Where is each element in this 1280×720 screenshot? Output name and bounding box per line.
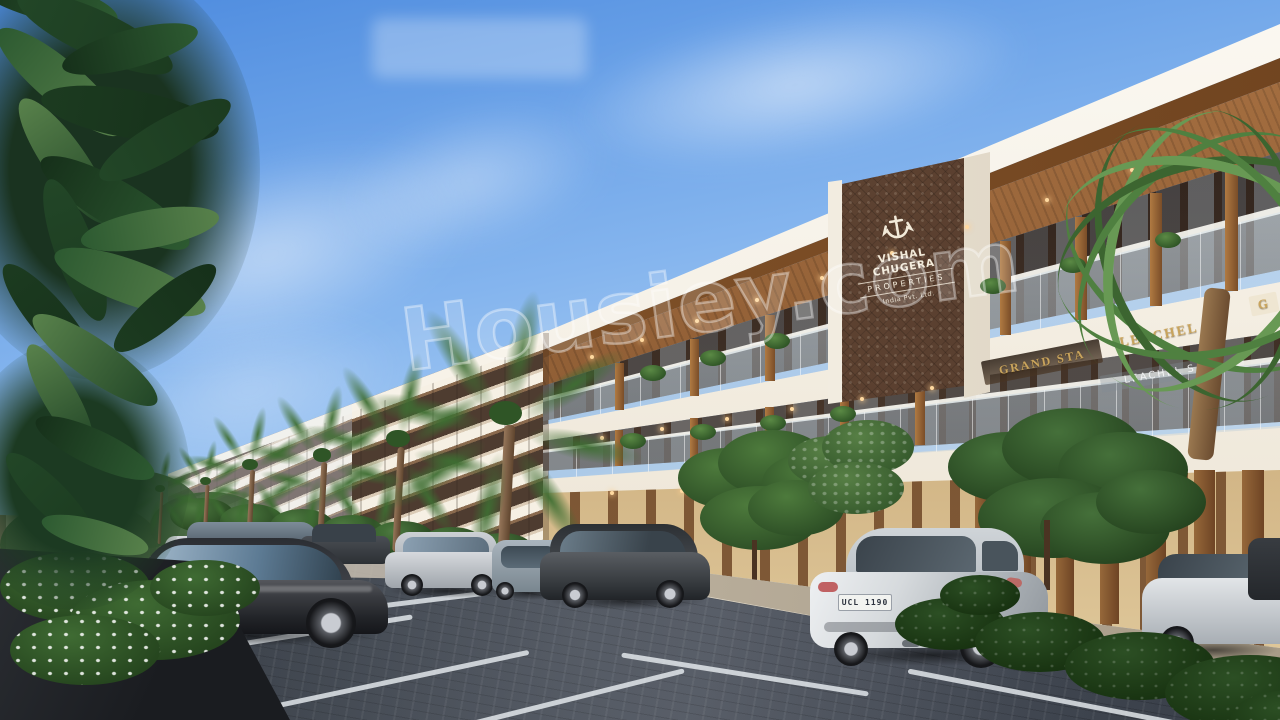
palm-crown-core (386, 430, 409, 447)
flower-bush (150, 560, 260, 616)
soffit-downlight (755, 298, 759, 302)
car-rear-glass (856, 536, 976, 572)
soffit-downlight (965, 225, 969, 229)
balcony-plant (764, 333, 790, 349)
tree-canopy (808, 462, 904, 514)
shrub (940, 575, 1020, 615)
balcony-plant (760, 415, 786, 431)
parked-car-right-dark (1248, 538, 1280, 600)
soffit-downlight (695, 319, 699, 323)
car-wheel (496, 582, 514, 600)
wood-pillar (690, 339, 699, 396)
soffit-downlight (1045, 198, 1049, 202)
car-wheel (306, 598, 356, 648)
erased-watermark-smudge (372, 18, 587, 78)
balcony-plant (830, 406, 856, 422)
car-taillight (818, 582, 838, 592)
balcony-plant (700, 350, 726, 366)
soffit-downlight (790, 407, 794, 411)
license-plate-number: UCL 1190 (842, 598, 889, 607)
car-side-glass (982, 541, 1018, 571)
brand-logo: VISHAL CHUGERA PROPERTIES India Pvt. Ltd… (839, 203, 964, 310)
car-wheel (401, 574, 423, 596)
wood-pillar (915, 385, 925, 445)
balcony-plant (980, 278, 1006, 294)
soffit-downlight (640, 338, 644, 342)
car-wheel (834, 632, 868, 666)
soffit-downlight (930, 386, 934, 390)
soffit-downlight (725, 417, 729, 421)
anchor-logo-icon (878, 210, 917, 249)
car-wheel (562, 582, 588, 608)
soffit-downlight (860, 397, 864, 401)
license-plate: UCL 1190 (838, 594, 892, 611)
car-wheel (656, 580, 684, 608)
palm-crown-core (489, 401, 522, 425)
palm-crown-core (313, 448, 332, 462)
palm-crown-core (200, 477, 211, 485)
soffit-downlight (610, 491, 614, 495)
parked-car-dark-suv (540, 524, 712, 612)
soffit-downlight (660, 427, 664, 431)
architectural-render-scene: VISHAL CHUGERA PROPERTIES India Pvt. Ltd… (0, 0, 1280, 720)
balcony-plant (640, 365, 666, 381)
tree-trunk (752, 540, 757, 582)
balcony-plant (690, 424, 716, 440)
soffit-downlight (820, 276, 824, 280)
flower-bush (10, 615, 160, 685)
tree-canopy (1096, 470, 1206, 534)
